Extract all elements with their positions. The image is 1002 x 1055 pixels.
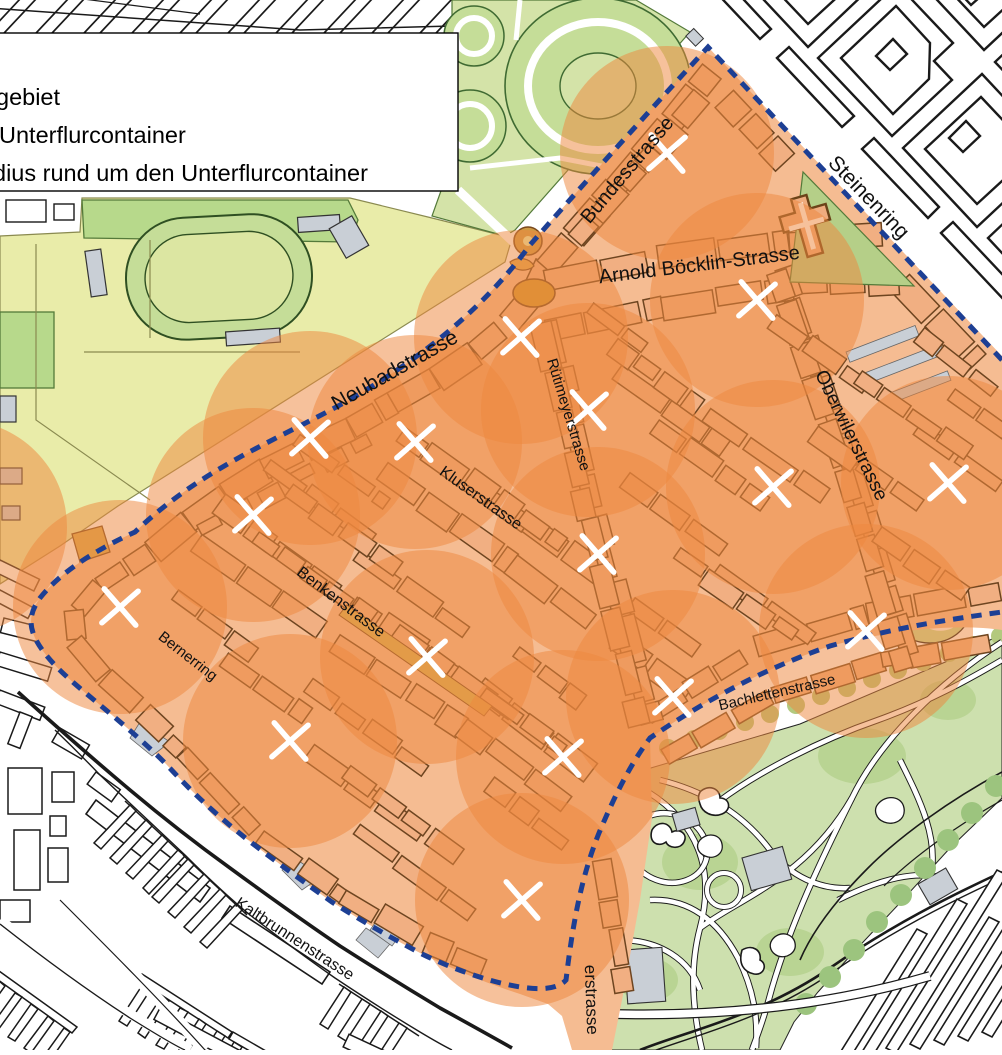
svg-text:Unterflurcontainer: Unterflurcontainer bbox=[0, 122, 186, 148]
svg-text:erstrasse: erstrasse bbox=[581, 965, 602, 1036]
svg-text:dius rund um den Unterflurcont: dius rund um den Unterflurcontainer bbox=[0, 160, 368, 186]
svg-text:gebiet: gebiet bbox=[0, 84, 60, 110]
